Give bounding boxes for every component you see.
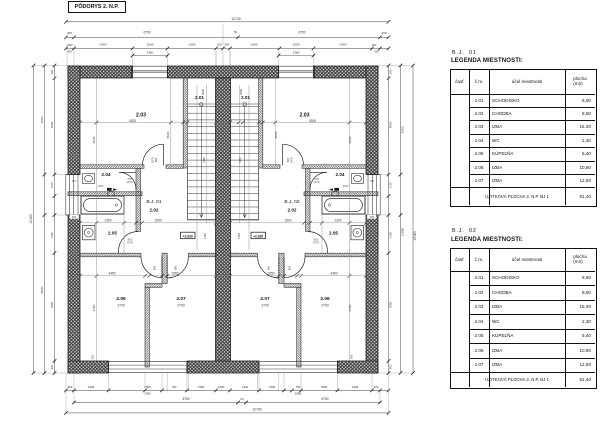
svg-text:750: 750 xyxy=(296,385,301,389)
svg-text:+2,920: +2,920 xyxy=(253,234,263,238)
svg-text:1970: 1970 xyxy=(126,180,133,184)
svg-text:1970: 1970 xyxy=(313,180,320,184)
svg-text:2400: 2400 xyxy=(100,43,107,47)
svg-text:2.06: 2.06 xyxy=(320,296,330,302)
svg-text:B.J. 01: B.J. 01 xyxy=(146,199,162,205)
svg-text:300: 300 xyxy=(370,179,375,183)
svg-text:300: 300 xyxy=(67,31,72,35)
svg-text:12740: 12740 xyxy=(231,17,241,21)
svg-text:1150: 1150 xyxy=(50,232,54,238)
svg-text:12180: 12180 xyxy=(413,231,417,240)
svg-text:7500: 7500 xyxy=(269,385,276,389)
svg-text:1170: 1170 xyxy=(389,182,393,188)
svg-text:1800: 1800 xyxy=(239,89,243,95)
svg-text:2.04: 2.04 xyxy=(102,172,111,177)
svg-text:2.04: 2.04 xyxy=(336,172,345,177)
svg-text:1970: 1970 xyxy=(313,241,320,245)
svg-text:2.06: 2.06 xyxy=(116,296,126,302)
svg-text:B.J. 02: B.J. 02 xyxy=(284,199,300,205)
svg-text:3540: 3540 xyxy=(166,131,170,138)
svg-text:60: 60 xyxy=(240,397,244,401)
svg-text:300: 300 xyxy=(217,42,222,46)
svg-text:300: 300 xyxy=(68,385,73,389)
svg-text:300: 300 xyxy=(91,354,95,359)
svg-text:1150: 1150 xyxy=(389,232,393,238)
svg-text:300: 300 xyxy=(68,43,73,47)
svg-text:800: 800 xyxy=(286,157,290,162)
svg-text:1300: 1300 xyxy=(242,385,249,389)
svg-text:7500: 7500 xyxy=(198,385,205,389)
svg-text:6750: 6750 xyxy=(298,31,305,35)
svg-text:50: 50 xyxy=(234,30,238,34)
svg-text:2700: 2700 xyxy=(321,304,329,308)
svg-text:6590: 6590 xyxy=(40,286,44,293)
svg-text:6750: 6750 xyxy=(143,31,150,35)
svg-text:3540: 3540 xyxy=(274,131,278,138)
svg-text:4060: 4060 xyxy=(389,121,393,128)
svg-text:1950: 1950 xyxy=(171,271,178,275)
svg-text:1150: 1150 xyxy=(202,157,206,163)
svg-text:7500: 7500 xyxy=(321,385,328,389)
svg-text:2.05: 2.05 xyxy=(329,231,338,236)
svg-text:2700: 2700 xyxy=(117,304,125,308)
svg-text:4260: 4260 xyxy=(400,126,404,133)
svg-text:2700: 2700 xyxy=(261,304,269,308)
svg-text:4300: 4300 xyxy=(309,119,317,123)
svg-text:2400: 2400 xyxy=(340,43,347,47)
svg-text:+2,920: +2,920 xyxy=(183,234,193,238)
svg-text:300: 300 xyxy=(389,364,393,369)
svg-text:4750: 4750 xyxy=(348,304,352,311)
svg-text:300: 300 xyxy=(370,215,375,219)
svg-text:1970: 1970 xyxy=(289,157,293,163)
svg-text:2000: 2000 xyxy=(343,184,349,188)
svg-text:2.03: 2.03 xyxy=(299,112,309,118)
svg-text:2380: 2380 xyxy=(147,51,154,55)
svg-text:2.07: 2.07 xyxy=(260,296,270,302)
svg-text:1500: 1500 xyxy=(147,43,154,47)
svg-text:300: 300 xyxy=(50,69,54,74)
svg-text:1970: 1970 xyxy=(151,157,155,163)
svg-text:3540: 3540 xyxy=(92,136,96,143)
svg-text:300: 300 xyxy=(372,43,377,47)
svg-text:1950: 1950 xyxy=(251,43,258,47)
svg-text:2380: 2380 xyxy=(144,391,151,395)
svg-text:800: 800 xyxy=(154,157,158,162)
svg-text:1950: 1950 xyxy=(267,271,274,275)
svg-text:1170: 1170 xyxy=(50,182,54,188)
svg-text:300: 300 xyxy=(67,50,72,54)
svg-text:900: 900 xyxy=(267,265,271,270)
svg-text:4750: 4750 xyxy=(92,304,96,311)
svg-text:2300: 2300 xyxy=(104,218,111,222)
svg-text:3450: 3450 xyxy=(330,271,337,275)
svg-text:1970: 1970 xyxy=(127,241,134,245)
svg-text:1950: 1950 xyxy=(189,43,196,47)
svg-text:2380: 2380 xyxy=(293,51,300,55)
svg-text:300: 300 xyxy=(72,179,77,183)
svg-text:800: 800 xyxy=(153,265,157,270)
svg-text:800: 800 xyxy=(288,265,292,270)
svg-text:12180: 12180 xyxy=(29,214,33,223)
svg-text:750: 750 xyxy=(172,385,177,389)
svg-text:1300: 1300 xyxy=(352,385,359,389)
svg-text:2.02: 2.02 xyxy=(150,208,159,213)
svg-text:6590: 6590 xyxy=(50,301,54,308)
svg-text:6590: 6590 xyxy=(389,301,393,308)
svg-text:7500: 7500 xyxy=(144,385,151,389)
svg-text:11580: 11580 xyxy=(400,228,404,237)
svg-text:3540: 3540 xyxy=(348,136,352,143)
svg-text:2.07: 2.07 xyxy=(176,296,186,302)
svg-text:300: 300 xyxy=(374,385,379,389)
svg-text:300: 300 xyxy=(72,215,77,219)
svg-text:3450: 3450 xyxy=(108,271,115,275)
svg-text:300: 300 xyxy=(374,50,379,54)
svg-text:2.05: 2.05 xyxy=(108,231,117,236)
svg-text:4260: 4260 xyxy=(40,116,44,123)
svg-text:300: 300 xyxy=(224,42,229,46)
svg-text:1300: 1300 xyxy=(88,385,95,389)
svg-text:2700: 2700 xyxy=(177,304,185,308)
svg-text:900: 900 xyxy=(174,265,178,270)
svg-text:2380: 2380 xyxy=(295,391,302,395)
svg-text:2.02: 2.02 xyxy=(288,208,297,213)
svg-text:4060: 4060 xyxy=(50,121,54,128)
svg-text:300: 300 xyxy=(389,69,393,74)
svg-text:2.03: 2.03 xyxy=(136,112,146,118)
svg-text:6750: 6750 xyxy=(321,397,328,401)
svg-text:2000: 2000 xyxy=(98,184,104,188)
svg-text:1150: 1150 xyxy=(237,233,241,239)
svg-text:300: 300 xyxy=(381,31,386,35)
svg-text:2300: 2300 xyxy=(334,218,341,222)
svg-text:12760: 12760 xyxy=(252,408,262,412)
svg-text:1300: 1300 xyxy=(218,385,225,389)
svg-text:4300: 4300 xyxy=(129,119,137,123)
svg-text:1500: 1500 xyxy=(293,43,300,47)
svg-text:1150: 1150 xyxy=(238,157,242,163)
svg-text:1150: 1150 xyxy=(203,233,207,239)
svg-text:1500: 1500 xyxy=(284,218,291,222)
svg-text:300: 300 xyxy=(50,364,54,369)
svg-text:1800: 1800 xyxy=(201,89,205,95)
svg-text:6750: 6750 xyxy=(182,397,189,401)
svg-text:300: 300 xyxy=(350,354,354,359)
svg-text:1500: 1500 xyxy=(154,218,161,222)
